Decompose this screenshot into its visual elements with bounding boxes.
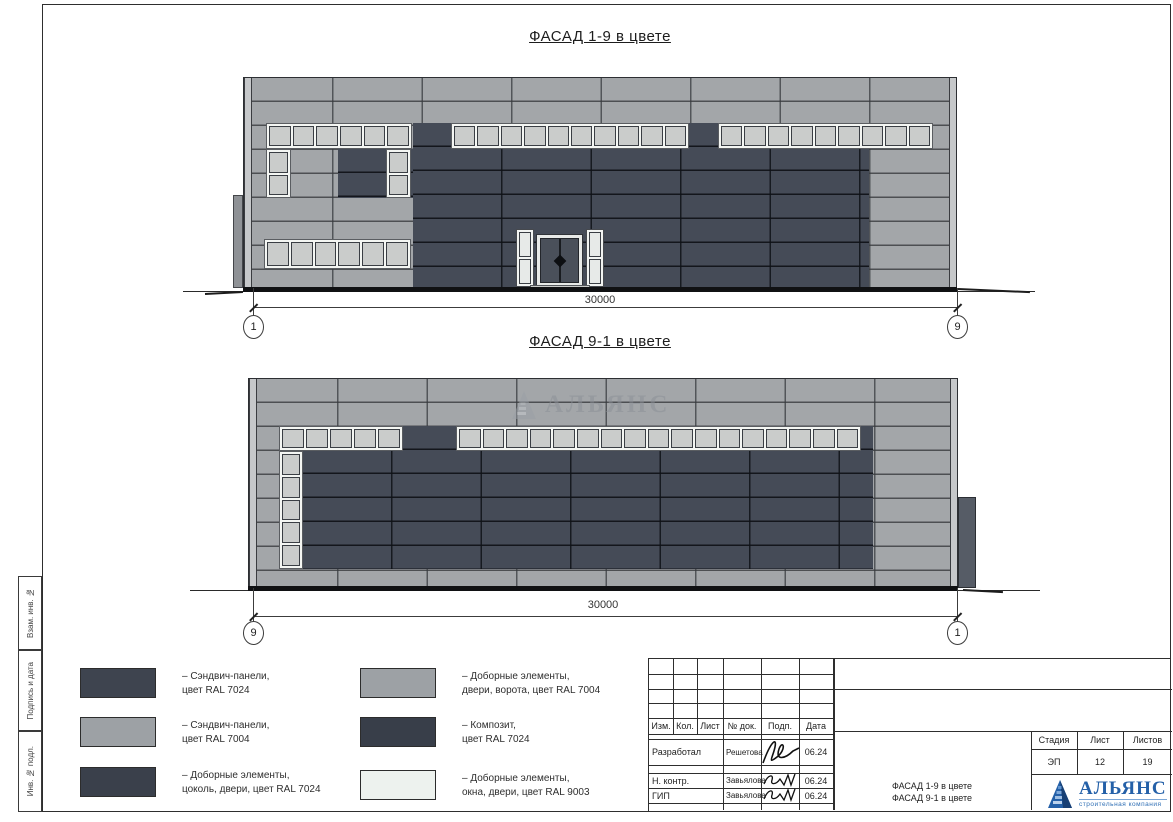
window-pane xyxy=(695,429,717,448)
tb-sheet-name: ФАСАД 1-9 в цвете ФАСАД 9-1 в цвете xyxy=(833,777,1031,807)
window-pane xyxy=(862,126,883,146)
tb-name: Завьялова xyxy=(723,773,761,788)
legend-swatch-ral9003 xyxy=(360,770,436,800)
window-pane xyxy=(671,429,693,448)
title-block: Изм. Кол. Лист № док. Подп. Дата Разрабо… xyxy=(648,658,1171,812)
legend-label: двери, ворота, цвет RAL 7004 xyxy=(462,684,600,698)
window-strip xyxy=(456,426,861,451)
window-pane xyxy=(648,429,670,448)
window-pane xyxy=(282,429,304,448)
signature-scribble xyxy=(761,786,801,804)
facade1-grid-marker-right: 9 xyxy=(947,315,968,339)
facade1-ext-line-left xyxy=(253,288,254,317)
window-pane xyxy=(282,545,300,566)
legend-label: – Доборные элементы, xyxy=(182,769,321,783)
window-pane xyxy=(269,152,288,173)
window-pane xyxy=(477,126,498,146)
logo-subtitle: строительная компания xyxy=(1079,799,1167,808)
window-pane xyxy=(315,242,337,266)
legend-item: – Доборные элементы,двери, ворота, цвет … xyxy=(360,668,600,698)
legend-swatch-composite xyxy=(360,717,436,747)
facade2-dimension: 30000 xyxy=(563,599,643,611)
window-pane xyxy=(571,126,592,146)
window-pane xyxy=(766,429,788,448)
window-pane xyxy=(624,429,646,448)
facade2-grid-marker-left: 9 xyxy=(243,621,264,645)
window-pane xyxy=(791,126,812,146)
legend-item: – Сэндвич-панели,цвет RAL 7004 xyxy=(80,717,269,747)
corner-trim-left xyxy=(244,78,252,288)
tb-date: 06.24 xyxy=(799,788,833,803)
window-pane xyxy=(364,126,386,146)
window-pane xyxy=(306,429,328,448)
legend-swatch-dob-ral7004 xyxy=(360,668,436,698)
door-sidelight xyxy=(586,229,604,287)
window-pane xyxy=(316,126,338,146)
window-pane xyxy=(719,429,741,448)
legend-label: цвет RAL 7004 xyxy=(182,733,269,747)
corner-trim-right xyxy=(949,78,957,288)
pyramid-logo-icon xyxy=(1047,779,1073,809)
window-pane xyxy=(501,126,522,146)
window-pane xyxy=(282,500,300,521)
facade-9-1-drawing: АЛЬЯНС xyxy=(248,378,958,588)
window-pane xyxy=(338,242,360,266)
legend-swatch-ral7024 xyxy=(80,668,156,698)
tb-sheets-label: Листов xyxy=(1123,731,1172,749)
window-pane xyxy=(282,477,300,498)
tb-name: Решетова xyxy=(723,739,761,765)
tb-date: 06.24 xyxy=(799,773,833,788)
watermark-logo: АЛЬЯНС xyxy=(511,389,670,421)
window-pane xyxy=(815,126,836,146)
window-pane xyxy=(601,429,623,448)
tb-sheets-value: 19 xyxy=(1123,749,1172,774)
margin-box-vzam: Взам. инв. № xyxy=(18,576,42,650)
window-pane xyxy=(548,126,569,146)
facade2-right-annex xyxy=(958,497,976,588)
window-pane xyxy=(454,126,475,146)
signature-scribble xyxy=(757,735,803,769)
tb-role: ГИП xyxy=(649,788,723,803)
window-pane xyxy=(282,522,300,543)
tb-role: Разработал xyxy=(649,739,723,765)
facade1-dim-line xyxy=(253,307,957,308)
window-pane xyxy=(362,242,384,266)
window-strip xyxy=(266,149,291,198)
window-pane xyxy=(354,429,376,448)
margin-label: Подпись и дата xyxy=(26,662,35,720)
margin-label: Взам. инв. № xyxy=(26,588,35,638)
window-pane xyxy=(459,429,481,448)
margin-box-inv: Инв. № подл. xyxy=(18,731,42,812)
window-pane xyxy=(282,454,300,475)
tb-col-podp: Подп. xyxy=(761,718,799,734)
tb-stage-label: Стадия xyxy=(1031,731,1077,749)
window-pane xyxy=(386,242,408,266)
margin-label: Инв. № подл. xyxy=(26,746,35,796)
window-pane xyxy=(524,126,545,146)
facade2-plinth xyxy=(248,586,958,591)
window-pane xyxy=(553,429,575,448)
tb-sheet-label: Лист xyxy=(1077,731,1123,749)
window-pane xyxy=(269,126,291,146)
legend-item: – Сэндвич-панели,цвет RAL 7024 xyxy=(80,668,269,698)
legend-label: – Доборные элементы, xyxy=(462,670,600,684)
window-pane xyxy=(291,242,313,266)
window-pane xyxy=(909,126,930,146)
tb-col-ndok: № док. xyxy=(723,718,761,734)
tb-role: Н. контр. xyxy=(649,773,723,788)
legend-label: цвет RAL 7024 xyxy=(182,684,269,698)
watermark-text: АЛЬЯНС xyxy=(545,391,670,419)
window-pane xyxy=(789,429,811,448)
window-pane xyxy=(721,126,742,146)
legend-label: – Сэндвич-панели, xyxy=(182,719,269,733)
door-leaves xyxy=(540,238,579,283)
margin-box-podpis: Подпись и дата xyxy=(18,650,42,731)
window-pane xyxy=(665,126,686,146)
facade1-left-pilaster xyxy=(233,195,243,288)
legend-label: цвет RAL 7024 xyxy=(462,733,530,747)
window-pane xyxy=(577,429,599,448)
drawing-sheet: Взам. инв. № Подпись и дата Инв. № подл.… xyxy=(0,0,1173,822)
window-pane xyxy=(389,152,408,173)
facade1-ext-line-right xyxy=(957,288,958,317)
legend-item: – Доборные элементы,цоколь, двери, цвет … xyxy=(80,767,321,797)
legend-item: – Доборные элементы,окна, двери, цвет RA… xyxy=(360,770,590,800)
window-strip xyxy=(266,123,412,149)
tb-col-data: Дата xyxy=(799,718,833,734)
window-pane xyxy=(768,126,789,146)
door-sidelight xyxy=(516,229,534,287)
window-pane xyxy=(340,126,362,146)
window-pane xyxy=(387,126,409,146)
window-strip xyxy=(451,123,689,149)
legend-label: окна, двери, цвет RAL 9003 xyxy=(462,786,590,800)
tb-col-list: Лист xyxy=(697,718,723,734)
legend-swatch-ral7004 xyxy=(80,717,156,747)
corner-trim-left xyxy=(249,379,257,588)
logo-name: АЛЬЯНС xyxy=(1079,780,1167,798)
legend-label: цоколь, двери, цвет RAL 7024 xyxy=(182,783,321,797)
tb-date: 06.24 xyxy=(799,739,833,765)
window-strip xyxy=(279,451,303,569)
facade1-title: ФАСАД 1-9 в цвете xyxy=(450,28,750,45)
window-strip xyxy=(718,123,933,149)
window-strip xyxy=(264,239,411,269)
window-pane xyxy=(483,429,505,448)
legend-swatch-dob-ral7024 xyxy=(80,767,156,797)
window-pane xyxy=(838,126,859,146)
legend-label: – Композит, xyxy=(462,719,530,733)
corner-trim-right xyxy=(950,379,958,588)
facade-1-9-drawing xyxy=(243,77,957,288)
facade1-plinth xyxy=(243,287,957,292)
legend-item: – Композит,цвет RAL 7024 xyxy=(360,717,530,747)
window-pane xyxy=(293,126,315,146)
window-pane xyxy=(267,242,289,266)
tb-sheet-value: 12 xyxy=(1077,749,1123,774)
facade2-grid-marker-right: 1 xyxy=(947,621,968,645)
facade2-title: ФАСАД 9-1 в цвете xyxy=(450,333,750,350)
window-strip xyxy=(386,149,411,198)
legend-label: – Сэндвич-панели, xyxy=(182,670,269,684)
facade2-dim-line xyxy=(253,616,957,617)
tb-col-izm: Изм. xyxy=(649,718,673,734)
window-pane xyxy=(885,126,906,146)
tb-stage-value: ЭП xyxy=(1031,749,1077,774)
window-pane xyxy=(742,429,764,448)
legend-label: – Доборные элементы, xyxy=(462,772,590,786)
company-logo: АЛЬЯНС строительная компания xyxy=(1047,779,1167,809)
window-pane xyxy=(530,429,552,448)
window-pane xyxy=(330,429,352,448)
window-pane xyxy=(269,175,288,196)
window-pane xyxy=(813,429,835,448)
tb-name: Завьялова xyxy=(723,788,761,803)
window-pane xyxy=(506,429,528,448)
window-pane xyxy=(618,126,639,146)
facade1-dimension: 30000 xyxy=(560,294,640,306)
window-pane xyxy=(389,175,408,196)
entrance-door xyxy=(536,234,583,287)
window-pane xyxy=(744,126,765,146)
window-pane xyxy=(378,429,400,448)
facade1-grid-marker-left: 1 xyxy=(243,315,264,339)
watermark-pyramid-icon xyxy=(511,389,537,421)
window-pane xyxy=(641,126,662,146)
door-handle-icon xyxy=(553,254,566,267)
window-pane xyxy=(837,429,859,448)
window-pane xyxy=(594,126,615,146)
tb-col-kol: Кол. xyxy=(673,718,697,734)
window-strip xyxy=(279,426,403,451)
